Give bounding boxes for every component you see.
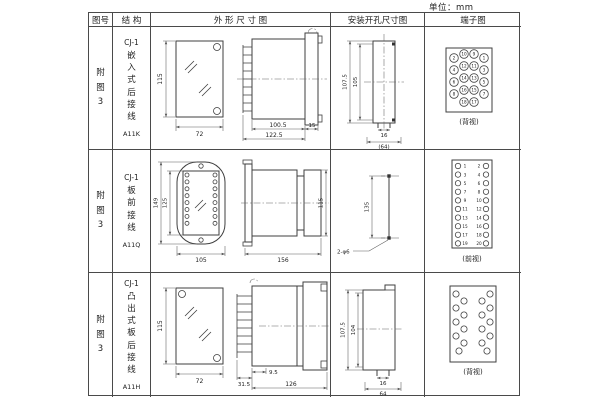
terminal-number: 3: [482, 68, 485, 73]
terminal-number: 10: [476, 198, 482, 203]
header-structure: 结 构: [113, 13, 151, 27]
outline-diagram-a11h: 115 72 9.5: [151, 274, 330, 396]
terminal-circle: [455, 224, 460, 229]
terminal-number: 2: [452, 56, 455, 61]
dim-label: 115: [157, 320, 164, 332]
terminal-circle: [455, 206, 460, 211]
terminal-circle: [483, 232, 488, 237]
terminal-block: [450, 286, 496, 362]
structure-code: A11K: [123, 130, 140, 138]
header-mounting: 安装开孔尺寸图: [331, 13, 425, 27]
terminal-number: 1: [482, 56, 485, 61]
header-outline: 外 形 尺 寸 图: [151, 13, 331, 27]
terminal-number: 13: [462, 215, 468, 220]
model-label: CJ-1: [124, 279, 139, 288]
terminal-number: 20: [476, 241, 482, 246]
terminal-circle: [455, 172, 460, 177]
terminal-circle: [455, 181, 460, 186]
view-label: (背视): [459, 117, 479, 126]
terminal-number: 8: [452, 92, 455, 97]
terminal-number: 11: [462, 207, 468, 212]
terminal-number: 15: [462, 224, 468, 229]
terminal-number: 18: [461, 100, 467, 105]
terminal-circle: [455, 163, 460, 168]
terminal-number: 16: [476, 224, 482, 229]
terminal-number: 12: [461, 64, 467, 69]
terminal-number: 10: [461, 52, 467, 57]
dim-label: 104: [351, 324, 357, 335]
structure-cell-row1: CJ-1 嵌入式后接线 A11K: [113, 27, 151, 150]
header-terminal: 端子图: [425, 13, 521, 27]
terminal-number: 2: [477, 164, 480, 169]
terminal-number: 1: [463, 164, 466, 169]
terminal-circle: [483, 241, 488, 246]
terminal-number: 17: [471, 100, 477, 105]
terminal-circle: [483, 224, 488, 229]
terminal-circle: [483, 189, 488, 194]
dim-label: 149: [154, 197, 160, 208]
spec-table: 图号 结 构 外 形 尺 寸 图 安装开孔尺寸图 端子图 附图3 CJ-1 嵌入…: [88, 12, 520, 396]
terminal-pins: [452, 291, 492, 354]
outline-diagram-a11q: 149 125 105 115: [151, 150, 330, 272]
structure-type: 嵌入式后接线: [127, 50, 137, 122]
fig-number: 附图3: [95, 313, 107, 356]
mounting-diagram-a11k: 107.5 105 16 (64): [331, 27, 424, 149]
relay-front-view: 149 125 105: [154, 162, 226, 264]
terminal-number: 9: [472, 52, 475, 57]
dim-label: 9.5: [269, 370, 278, 376]
dim-label: 156: [277, 257, 289, 264]
relay-front-view: 115 72: [157, 41, 223, 138]
mounting-cutout: 107.5 105 16 (64): [343, 34, 405, 149]
mounting-cell-row1: 107.5 105 16 (64): [331, 27, 425, 150]
dim-label: 126: [285, 381, 297, 388]
terminal-number: 7: [463, 190, 466, 195]
terminal-circle: [483, 163, 488, 168]
terminal-diagram-a11q: (前视) 1357911131517192468101214161820: [426, 150, 521, 272]
terminal-number: 6: [452, 80, 455, 85]
terminal-circle: [483, 215, 488, 220]
dim-label: 72: [196, 131, 204, 138]
hole-spec-label: 2-φ6: [337, 250, 350, 256]
header-fig: 图号: [89, 13, 113, 27]
outline-diagram-a11k: 115 72 100.5 15: [151, 27, 330, 149]
terminal-number: 11: [471, 64, 477, 69]
dim-label: 15: [309, 123, 316, 129]
terminal-number: 4: [477, 172, 480, 177]
dim-label: 107.5: [341, 322, 347, 338]
terminal-number: 16: [461, 88, 467, 93]
dim-label: 125: [163, 197, 169, 208]
structure-type: 凸出式板后接线: [127, 291, 137, 375]
outline-cell-row2: 149 125 105 115: [151, 150, 331, 273]
view-label: (背视): [463, 367, 483, 376]
terminal-number: 13: [471, 76, 477, 81]
terminal-circle: [455, 198, 460, 203]
document-page: 单位：mm 图号 结 构 外 形 尺 寸 图 安装开孔尺寸图 端子图 附图3 C…: [0, 0, 600, 400]
seal-hook: [308, 29, 317, 34]
terminal-circle: [483, 198, 488, 203]
dim-label: 135: [365, 201, 371, 212]
terminal-circle: [455, 232, 460, 237]
front-terminal-pins: [185, 173, 217, 225]
structure-code: A11Q: [123, 241, 141, 249]
dim-label: (64): [378, 145, 389, 150]
dim-label: 105: [195, 257, 207, 264]
fig-cell-row1: 附图3: [89, 27, 113, 150]
relay-side-view: 100.5 15 122.5: [237, 29, 327, 142]
terminal-cell-row3: (背视): [425, 273, 521, 397]
relay-side-view: 9.5 31.5 126: [237, 279, 330, 390]
outline-cell-row1: 115 72 100.5 15: [151, 27, 331, 150]
terminal-circle: [455, 241, 460, 246]
terminal-diagram-a11k: (背视) 246810121416189111315171357: [426, 27, 521, 149]
dim-label: 31.5: [238, 382, 251, 388]
terminal-number: 14: [461, 76, 467, 81]
terminal-block: [452, 160, 492, 248]
dim-label: 100.5: [269, 122, 286, 129]
structure-code: A11H: [123, 383, 141, 391]
terminal-number: 5: [482, 80, 485, 85]
dim-label: 115: [157, 73, 164, 85]
terminal-number: 7: [482, 92, 485, 97]
fig-number: 附图3: [95, 189, 107, 232]
mounting-cell-row2: 135 2-φ6: [331, 150, 425, 273]
terminal-number: 12: [476, 207, 482, 212]
terminal-circle: [483, 172, 488, 177]
terminal-cell-row1: (背视) 246810121416189111315171357: [425, 27, 521, 150]
terminal-cell-row2: (前视) 1357911131517192468101214161820: [425, 150, 521, 273]
dim-label: 16: [381, 133, 388, 139]
model-label: CJ-1: [124, 38, 139, 47]
terminal-circle: [483, 181, 488, 186]
fig-cell-row2: 附图3: [89, 150, 113, 273]
terminal-circle: [455, 215, 460, 220]
structure-cell-row2: CJ-1 板前接线 A11Q: [113, 150, 151, 273]
dim-label: 115: [319, 197, 325, 208]
terminal-number: 6: [477, 181, 480, 186]
terminal-number: 14: [476, 215, 482, 220]
structure-type: 板前接线: [127, 185, 137, 233]
terminal-number: 19: [462, 241, 468, 246]
mounting-cutout: 107.5 104 16 64: [341, 285, 404, 396]
terminal-number: 15: [471, 88, 477, 93]
terminal-number: 18: [476, 233, 482, 238]
terminal-circle: [483, 206, 488, 211]
dim-label: 16: [380, 381, 387, 387]
seal-hook: [250, 279, 258, 283]
terminal-number: 4: [452, 68, 455, 73]
terminal-diagram-a11h: (背视): [426, 274, 521, 396]
dim-label: 122.5: [265, 132, 282, 139]
dim-label: 107.5: [343, 74, 349, 90]
model-label: CJ-1: [124, 173, 139, 182]
terminal-circle: [455, 189, 460, 194]
terminal-number: 5: [463, 181, 466, 186]
outline-cell-row3: 115 72 9.5: [151, 273, 331, 397]
relay-front-view: 115 72: [157, 288, 223, 385]
dim-label: 72: [196, 378, 204, 385]
mounting-diagram-a11q: 135 2-φ6: [331, 150, 424, 272]
dim-label: 105: [353, 76, 359, 87]
terminal-number: 8: [477, 190, 480, 195]
fig-number: 附图3: [95, 66, 107, 109]
view-label: (前视): [462, 254, 482, 263]
terminal-number: 9: [463, 198, 466, 203]
relay-side-view: 115 156: [241, 160, 329, 264]
terminal-number: 17: [462, 233, 468, 238]
structure-cell-row3: CJ-1 凸出式板后接线 A11H: [113, 273, 151, 397]
dim-label: 64: [380, 392, 387, 397]
mounting-cell-row3: 107.5 104 16 64: [331, 273, 425, 397]
mounting-holes: 135 2-φ6: [337, 174, 399, 255]
terminal-number: 3: [463, 172, 466, 177]
fig-cell-row3: 附图3: [89, 273, 113, 397]
mounting-diagram-a11h: 107.5 104 16 64: [331, 274, 424, 396]
